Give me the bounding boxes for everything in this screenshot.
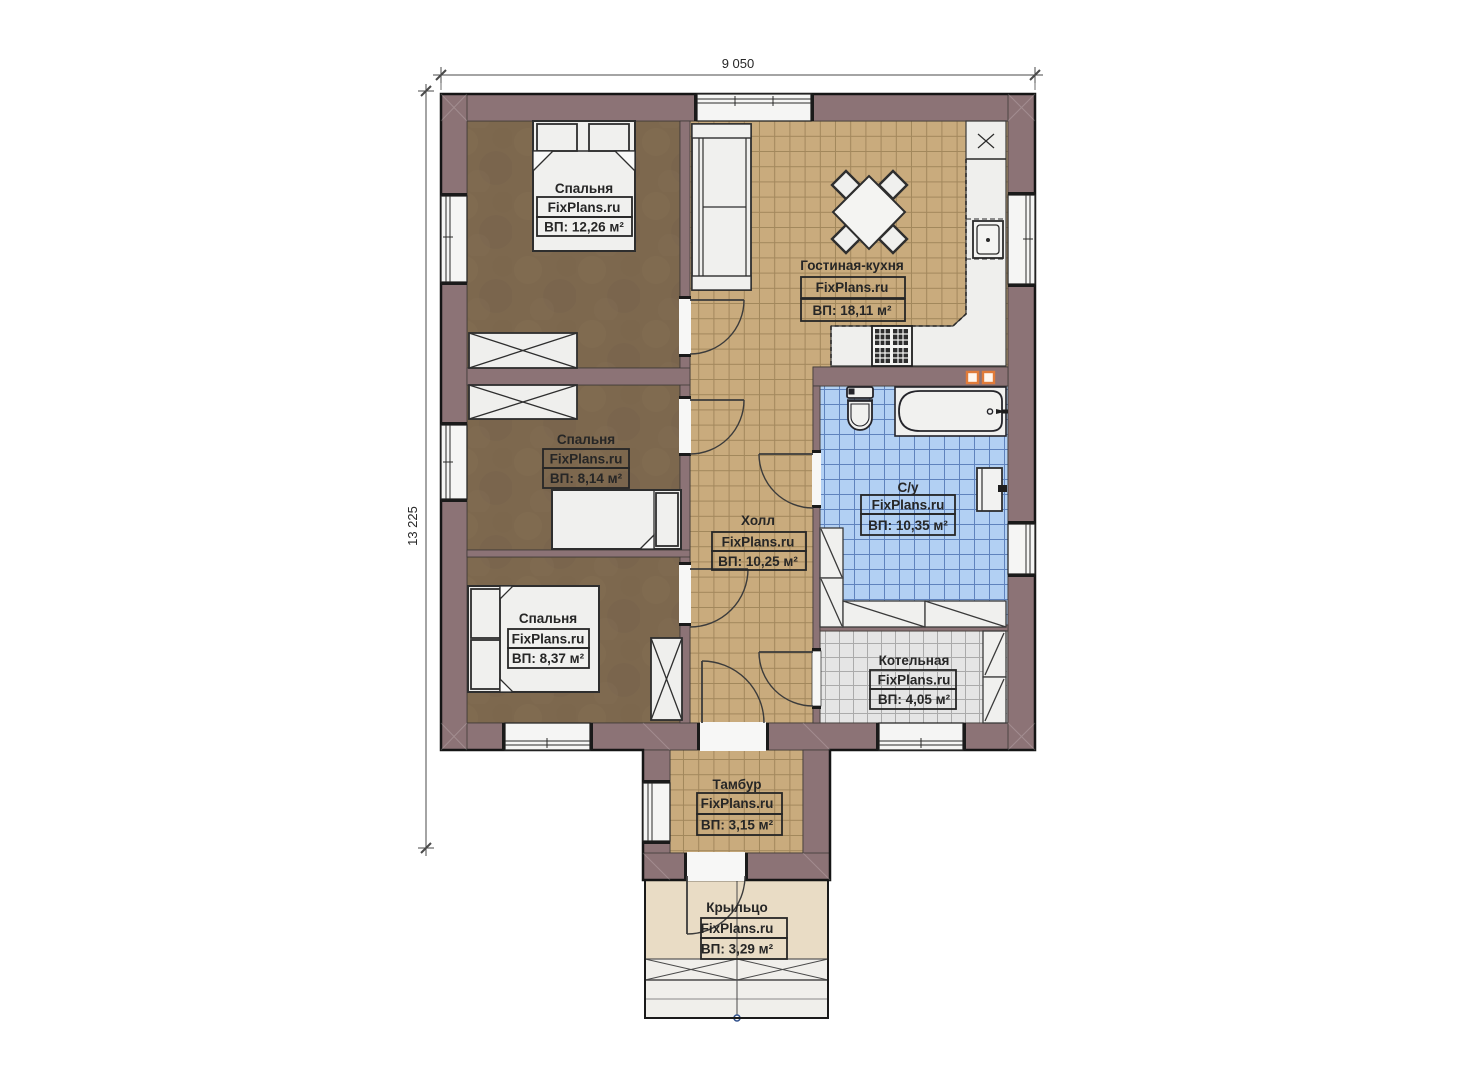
svg-text:Котельная: Котельная [879,653,950,668]
svg-text:Спальня: Спальня [555,181,613,196]
svg-text:Спальня: Спальня [557,432,615,447]
svg-text:ВП: 12,26 м²: ВП: 12,26 м² [544,220,624,235]
svg-text:13 225: 13 225 [405,506,420,546]
svg-text:FixPlans.ru: FixPlans.ru [872,498,945,513]
svg-text:ВП: 18,11 м²: ВП: 18,11 м² [813,303,892,318]
svg-text:ВП: 10,25 м²: ВП: 10,25 м² [718,554,798,569]
svg-text:ВП: 4,05 м²: ВП: 4,05 м² [878,692,951,707]
svg-text:FixPlans.ru: FixPlans.ru [878,673,951,688]
svg-text:ВП: 10,35 м²: ВП: 10,35 м² [868,518,948,533]
svg-text:Крыльцо: Крыльцо [706,900,767,915]
svg-text:Гостиная-кухня: Гостиная-кухня [800,258,903,273]
svg-text:FixPlans.ru: FixPlans.ru [512,632,585,647]
svg-text:ВП: 8,14 м²: ВП: 8,14 м² [550,471,623,486]
svg-text:Тамбур: Тамбур [713,777,762,792]
svg-text:С/у: С/у [897,480,919,495]
svg-text:FixPlans.ru: FixPlans.ru [548,200,621,215]
svg-text:ВП: 8,37 м²: ВП: 8,37 м² [512,651,585,666]
svg-text:Холл: Холл [741,513,775,528]
svg-text:FixPlans.ru: FixPlans.ru [722,535,795,550]
svg-text:ВП: 3,15 м²: ВП: 3,15 м² [701,818,774,833]
svg-text:FixPlans.ru: FixPlans.ru [701,796,774,811]
svg-text:ВП: 3,29 м²: ВП: 3,29 м² [701,942,774,957]
svg-text:FixPlans.ru: FixPlans.ru [816,280,889,295]
svg-text:FixPlans.ru: FixPlans.ru [550,452,623,467]
svg-text:Спальня: Спальня [519,611,577,626]
svg-text:9 050: 9 050 [722,56,755,71]
svg-text:FixPlans.ru: FixPlans.ru [701,921,774,936]
